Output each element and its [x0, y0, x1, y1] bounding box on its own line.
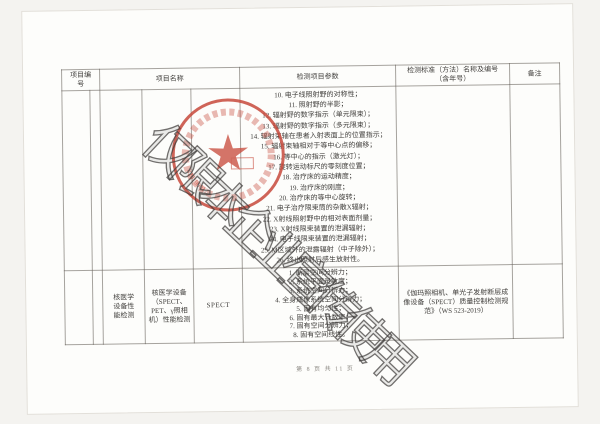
cell-empty	[64, 270, 93, 345]
page-number-footer: 第 8 页 共 11 页	[265, 363, 385, 374]
cell-subcategory: 核医学设备（SPECT、PET、γ照相机）性能检测	[144, 269, 194, 344]
detection-items-table: 项目编号 项目名称 检测项目参数 检测标准（方法）名称及编号 （含年号） 备注 …	[61, 62, 564, 345]
header-item-number-label: 项目编号	[70, 71, 92, 89]
param-line: 8. 固有空间线性。	[246, 330, 397, 341]
table-row-spect: 核医学设备性能检测 核医学设备（SPECT、PET、γ照相机）性能检测 SPEC…	[64, 264, 563, 345]
cell-parameters-list: 1. 断层空间分辨力；2. 系统平面灵敏度；3. 系统空间分辨力；4. 全身成像…	[242, 266, 399, 342]
header-standard-line2: （含年号）	[398, 74, 507, 85]
category-label: 核医学设备性能检测	[113, 293, 135, 320]
document-page: 项目编号 项目名称 检测项目参数 检测标准（方法）名称及编号 （含年号） 备注 …	[21, 3, 579, 415]
cell-standard-empty	[396, 85, 513, 267]
cell-empty	[100, 90, 145, 271]
header-standard: 检测标准（方法）名称及编号 （含年号）	[396, 64, 510, 87]
param-line: 26. 终止照射后感生放射性。	[245, 254, 396, 266]
cell-remark-empty	[512, 264, 563, 339]
table-row-accelerator-continued: 10. 电子线照射野的对称性；11. 照射野的半影；12. 辐射野的数字指示（单…	[62, 84, 562, 271]
cell-standard-ws523: 《伽玛照相机、单光子发射断层成像设备（SPECT）质量控制检测规范》（WS 52…	[398, 265, 513, 341]
red-seal-stamp: 420190012	[168, 95, 288, 215]
cell-empty	[62, 90, 93, 270]
cell-remark-empty	[510, 84, 563, 265]
scanned-document: { "page": { "footer": "第 8 页 共 11 页" }, …	[0, 0, 600, 424]
header-item-number: 项目编号	[62, 69, 100, 91]
cell-item-spect: SPECT	[193, 268, 243, 343]
header-test-parameters: 检测项目参数	[240, 65, 396, 88]
cell-category: 核医学设备性能检测	[102, 270, 145, 345]
header-item-name: 项目名称	[100, 67, 240, 90]
seal-star-icon	[208, 134, 248, 171]
header-remark: 备注	[509, 63, 559, 85]
